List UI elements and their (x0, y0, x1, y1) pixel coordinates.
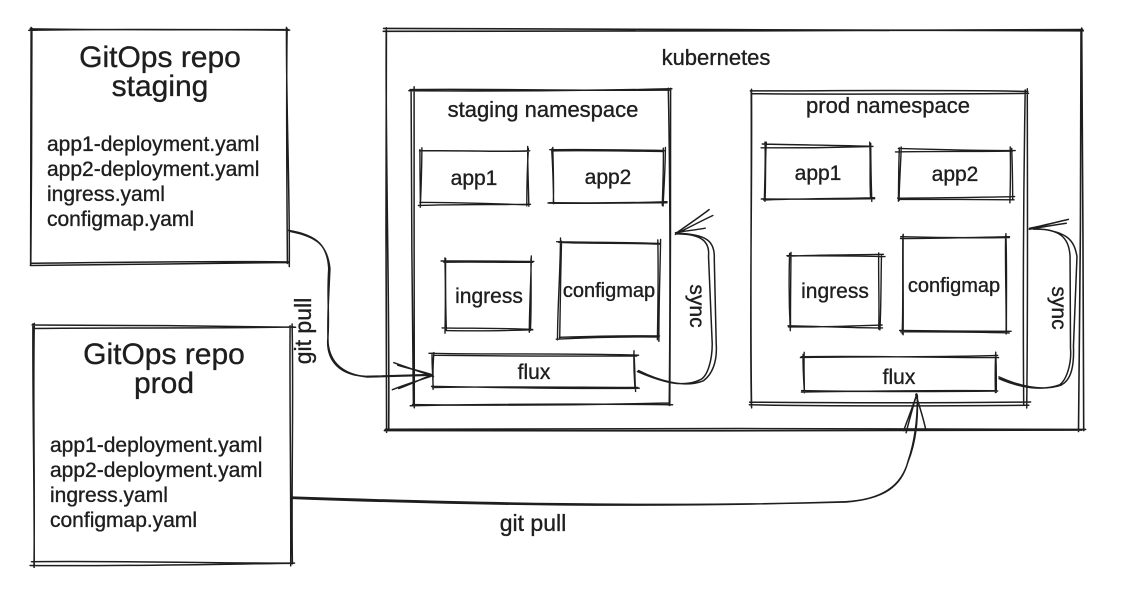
svg-text:configmap: configmap (908, 275, 1000, 297)
svg-text:kubernetes: kubernetes (662, 45, 771, 70)
svg-text:app2: app2 (585, 166, 632, 189)
svg-text:ingress.yaml: ingress.yaml (47, 183, 165, 206)
svg-text:configmap: configmap (563, 280, 655, 302)
svg-text:app1-deployment.yaml: app1-deployment.yaml (47, 133, 259, 156)
svg-text:configmap.yaml: configmap.yaml (47, 208, 194, 231)
svg-text:app1-deployment.yaml: app1-deployment.yaml (50, 434, 262, 457)
svg-text:git pull: git pull (290, 298, 316, 364)
svg-text:staging: staging (112, 70, 209, 103)
svg-text:flux: flux (883, 366, 916, 389)
svg-text:configmap.yaml: configmap.yaml (50, 509, 197, 532)
svg-text:app2: app2 (932, 163, 979, 186)
svg-text:ingress: ingress (801, 280, 869, 303)
svg-text:flux: flux (518, 361, 551, 384)
svg-text:app2-deployment.yaml: app2-deployment.yaml (47, 158, 259, 181)
svg-text:ingress: ingress (455, 285, 523, 308)
svg-text:prod namespace: prod namespace (806, 93, 970, 118)
svg-text:sync: sync (685, 284, 708, 327)
svg-text:prod: prod (134, 367, 194, 400)
svg-text:app1: app1 (451, 167, 498, 190)
svg-text:staging namespace: staging namespace (448, 97, 639, 122)
svg-text:ingress.yaml: ingress.yaml (50, 484, 168, 507)
svg-text:sync: sync (1047, 286, 1070, 329)
svg-text:app2-deployment.yaml: app2-deployment.yaml (50, 459, 262, 482)
svg-text:app1: app1 (795, 162, 842, 185)
svg-text:git pull: git pull (500, 510, 566, 536)
